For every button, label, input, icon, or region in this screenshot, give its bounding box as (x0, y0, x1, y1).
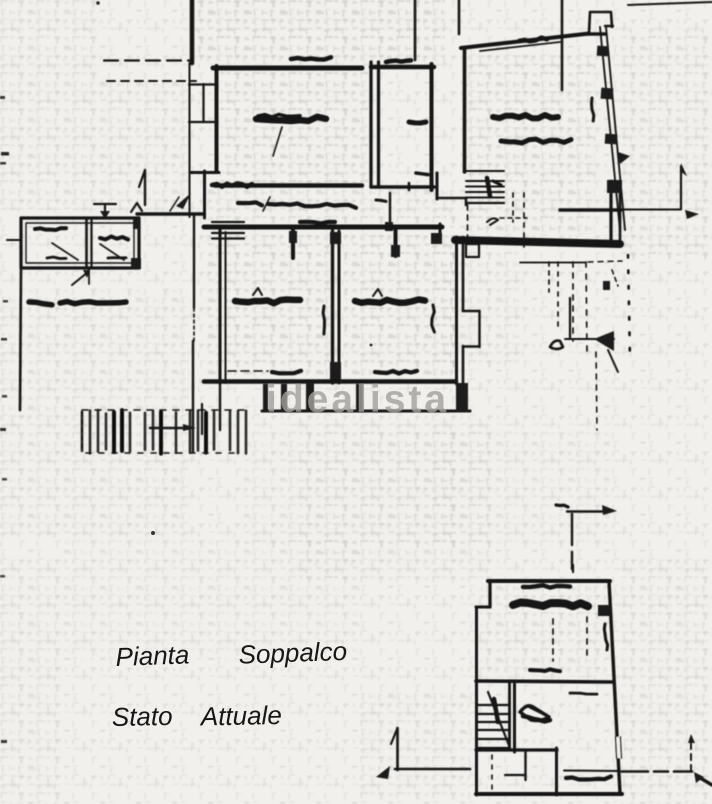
svg-text:idealista: idealista (266, 378, 449, 421)
